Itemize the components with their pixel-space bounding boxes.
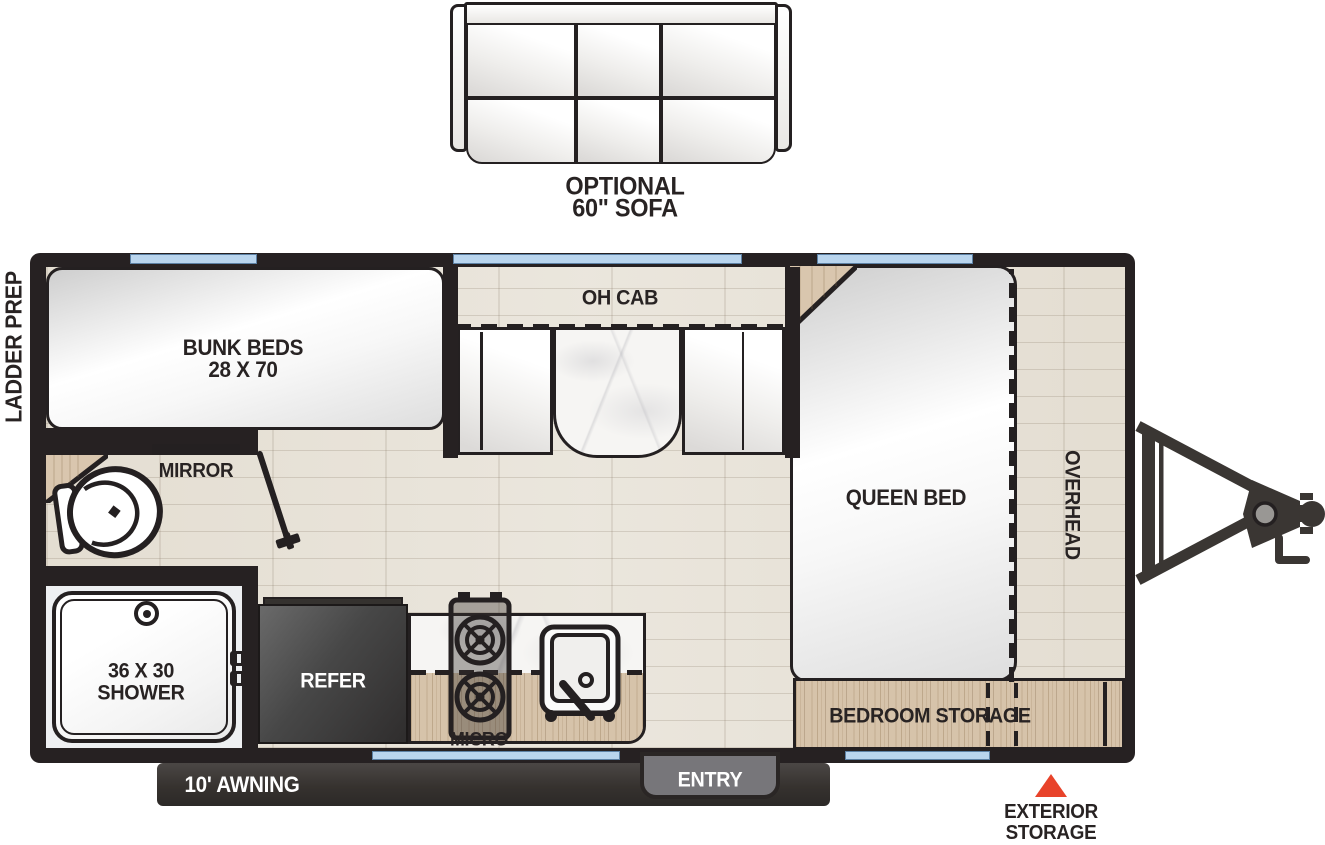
window-strip <box>372 751 620 760</box>
refrigerator-label: REFER <box>300 669 366 692</box>
oh-cab-label: OH CAB <box>582 286 658 309</box>
sofa-cushion <box>661 98 776 164</box>
awning-label: 10' AWNING <box>184 773 299 797</box>
exterior-storage-label-line1: EXTERIOR <box>1004 801 1098 823</box>
wall-bath-divider <box>30 566 258 586</box>
mirror-label: MIRROR <box>159 460 234 482</box>
bedroom-storage-label: BEDROOM STORAGE <box>829 704 1031 727</box>
stove-burners-icon <box>448 592 512 742</box>
bunk-beds-label-line2: 28 X 70 <box>208 358 277 382</box>
sofa-cushion <box>466 23 576 98</box>
micro-label: MICRO <box>450 731 508 752</box>
ohcab-dashed-line <box>455 324 788 329</box>
mirror <box>152 444 240 455</box>
wall-dinette-bedroom <box>785 267 800 458</box>
exterior-storage-marker <box>1035 774 1067 797</box>
window-strip <box>130 254 257 264</box>
sofa-cushions <box>466 23 776 164</box>
overhead-dashed-line <box>1009 269 1014 682</box>
sink-icon <box>539 624 621 724</box>
dinette-bench-left <box>457 327 553 455</box>
ladder-prep-label: LADDER PREP <box>1 271 26 423</box>
shower-label-line2: SHOWER <box>97 681 184 704</box>
window-strip <box>453 254 742 264</box>
shower-drain-icon <box>143 610 151 618</box>
overhead-label: OVERHEAD <box>1060 450 1083 560</box>
toilet-icon <box>52 460 166 566</box>
sofa-arm-right <box>775 4 792 152</box>
dinette-bench-right <box>682 327 785 455</box>
floorplan-diagram: OPTIONAL 60" SOFA LADDER PREP BUNK BEDS … <box>0 0 1325 845</box>
sofa-cushion <box>576 23 661 98</box>
entry-label: ENTRY <box>678 768 743 791</box>
sofa-cushion <box>576 98 661 164</box>
dinette-table <box>553 327 682 458</box>
storage-divider <box>1103 682 1107 746</box>
shower-label-line1: 36 X 30 <box>108 659 174 682</box>
sofa-label-line2: 60" SOFA <box>572 195 678 223</box>
queen-bed-label: QUEEN BED <box>846 486 966 510</box>
sofa-cushion <box>661 23 776 98</box>
window-strip <box>845 751 990 760</box>
sofa-arm-left <box>450 4 467 152</box>
wall-shower-right <box>242 572 258 748</box>
sofa-cushion <box>466 98 576 164</box>
exterior-storage-label-line2: STORAGE <box>1006 822 1097 844</box>
tongue-hitch-icon <box>1132 408 1325 598</box>
window-strip <box>817 254 973 264</box>
wall-bunk-dinette <box>443 267 458 458</box>
bed-corner-wedge <box>790 266 857 330</box>
